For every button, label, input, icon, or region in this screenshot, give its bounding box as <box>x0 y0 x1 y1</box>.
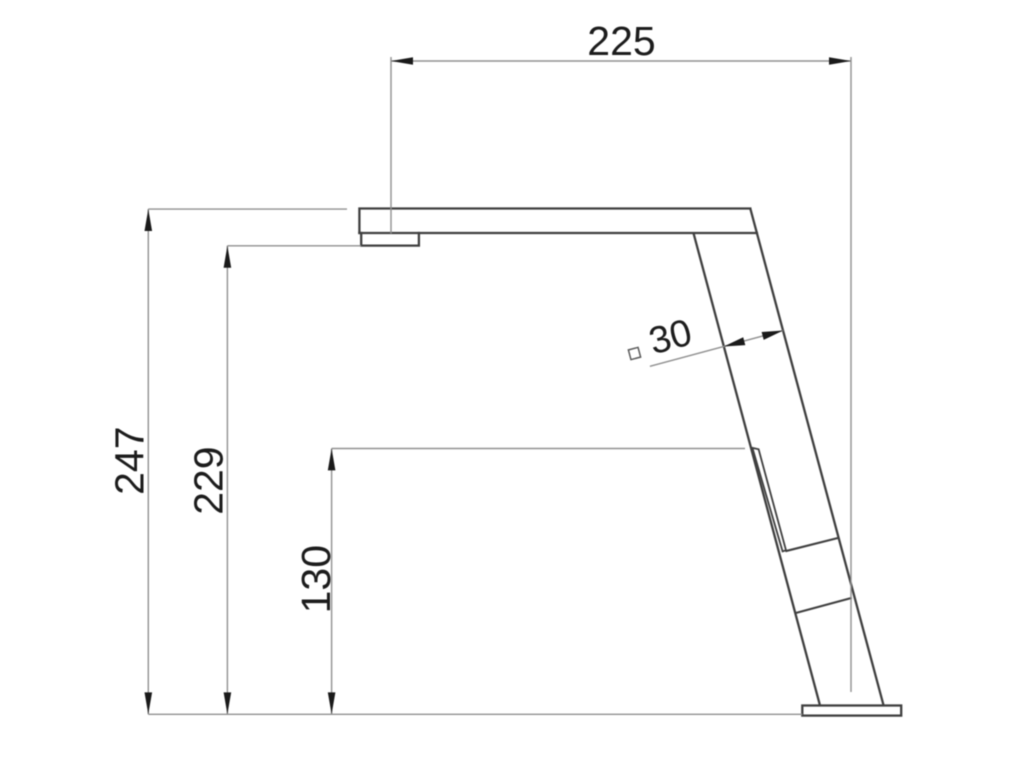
svg-text:130: 130 <box>293 545 339 613</box>
svg-text:225: 225 <box>587 18 655 64</box>
svg-text:247: 247 <box>107 426 153 494</box>
svg-text:229: 229 <box>186 446 232 514</box>
